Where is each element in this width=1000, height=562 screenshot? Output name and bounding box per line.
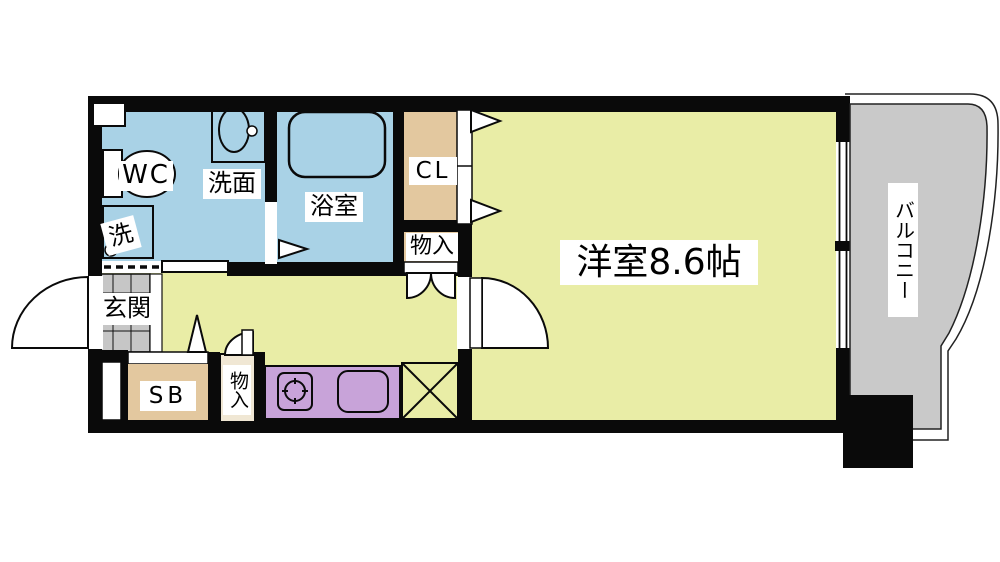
- lower-storage-label: 物入: [223, 365, 251, 415]
- balcony-deck: [850, 104, 987, 429]
- western-room-label: 洋室8.6帖: [560, 240, 758, 285]
- window-mullion: [835, 241, 851, 251]
- pipe-space-lower: [102, 362, 121, 420]
- pipe-space-box: [93, 103, 125, 126]
- wc-label: WC: [119, 161, 173, 191]
- upper-storage-door-bar: [404, 262, 458, 273]
- washbasin-label: 洗面: [203, 169, 261, 199]
- lower-storage-door-leaf: [242, 330, 253, 355]
- floor-plan: WC 洗面 洗 浴室 CL 物入 洋室8.6帖 バルコニー 玄関 SB 物入: [0, 0, 1000, 562]
- bath-door-opening: [265, 202, 277, 264]
- room-door-leaf: [470, 278, 482, 348]
- floor-plan-drawing: [0, 0, 1000, 562]
- washbasin-faucet-icon: [247, 126, 257, 136]
- balcony-label: バルコニー: [888, 183, 918, 317]
- wall-bath-closet: [393, 96, 404, 264]
- upper-storage-label: 物入: [406, 233, 458, 261]
- entrance-door-swing: [12, 277, 88, 348]
- wall-right-top-stub: [836, 96, 850, 142]
- closet-label: CL: [409, 157, 457, 185]
- entrance-label: 玄関: [96, 293, 158, 325]
- shoebox-label: SB: [140, 381, 196, 411]
- closet-door-strip: [457, 110, 472, 224]
- shoebox-door-bar: [128, 352, 208, 364]
- pillar-block: [843, 395, 913, 468]
- washroom-door: [162, 261, 228, 272]
- wall-sb-storage: [207, 352, 220, 422]
- bathroom-label: 浴室: [305, 192, 363, 222]
